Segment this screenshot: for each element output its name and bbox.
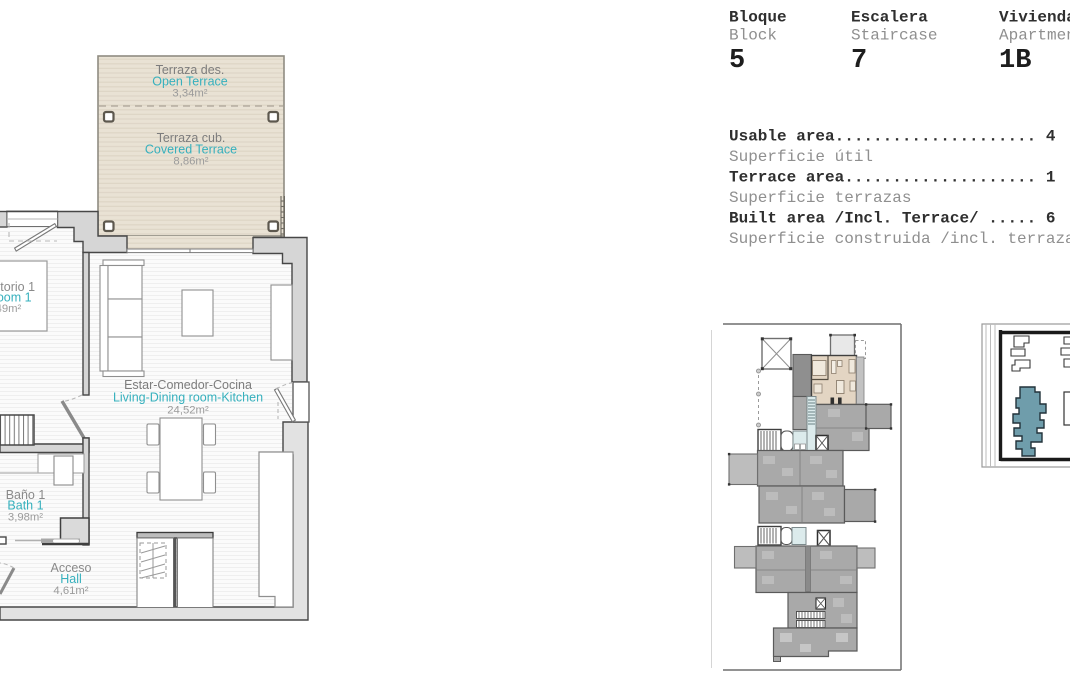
svg-text:Vivienda: Vivienda bbox=[999, 9, 1070, 27]
svg-text:Bloque: Bloque bbox=[729, 9, 787, 27]
svg-text:Hall: Hall bbox=[60, 572, 82, 586]
svg-text:Superficie construida /incl. t: Superficie construida /incl. terraza/ bbox=[729, 230, 1070, 248]
svg-text:Escalera: Escalera bbox=[851, 9, 928, 27]
svg-text:3,34m²: 3,34m² bbox=[172, 88, 207, 100]
svg-text:1B: 1B bbox=[999, 46, 1031, 76]
svg-text:5: 5 bbox=[729, 46, 745, 76]
svg-text:Apartment: Apartment bbox=[999, 27, 1070, 45]
svg-text:Terrace area..................: Terrace area.................... 1 bbox=[729, 169, 1055, 187]
svg-text:Covered Terrace: Covered Terrace bbox=[145, 143, 237, 157]
svg-text:24,52m²: 24,52m² bbox=[167, 405, 209, 417]
svg-text:Bath 1: Bath 1 bbox=[7, 499, 43, 513]
svg-text:Staircase: Staircase bbox=[851, 27, 937, 45]
svg-text:3,98m²: 3,98m² bbox=[8, 512, 43, 524]
svg-text:4,61m²: 4,61m² bbox=[53, 585, 88, 597]
svg-text:Block: Block bbox=[729, 27, 777, 45]
svg-text:Superficie terrazas: Superficie terrazas bbox=[729, 189, 911, 207]
svg-text:Built area /Incl. Terrace/ ...: Built area /Incl. Terrace/ ..... 6 bbox=[729, 210, 1055, 228]
svg-text:Superficie útil: Superficie útil bbox=[729, 148, 873, 166]
svg-text:Usable area...................: Usable area..................... 4 bbox=[729, 128, 1056, 146]
svg-text:11,49m²: 11,49m² bbox=[0, 303, 22, 315]
svg-text:7: 7 bbox=[851, 46, 867, 76]
svg-text:Living-Dining room-Kitchen: Living-Dining room-Kitchen bbox=[113, 391, 263, 405]
svg-text:8,86m²: 8,86m² bbox=[173, 156, 208, 168]
svg-text:Open Terrace: Open Terrace bbox=[152, 75, 228, 89]
